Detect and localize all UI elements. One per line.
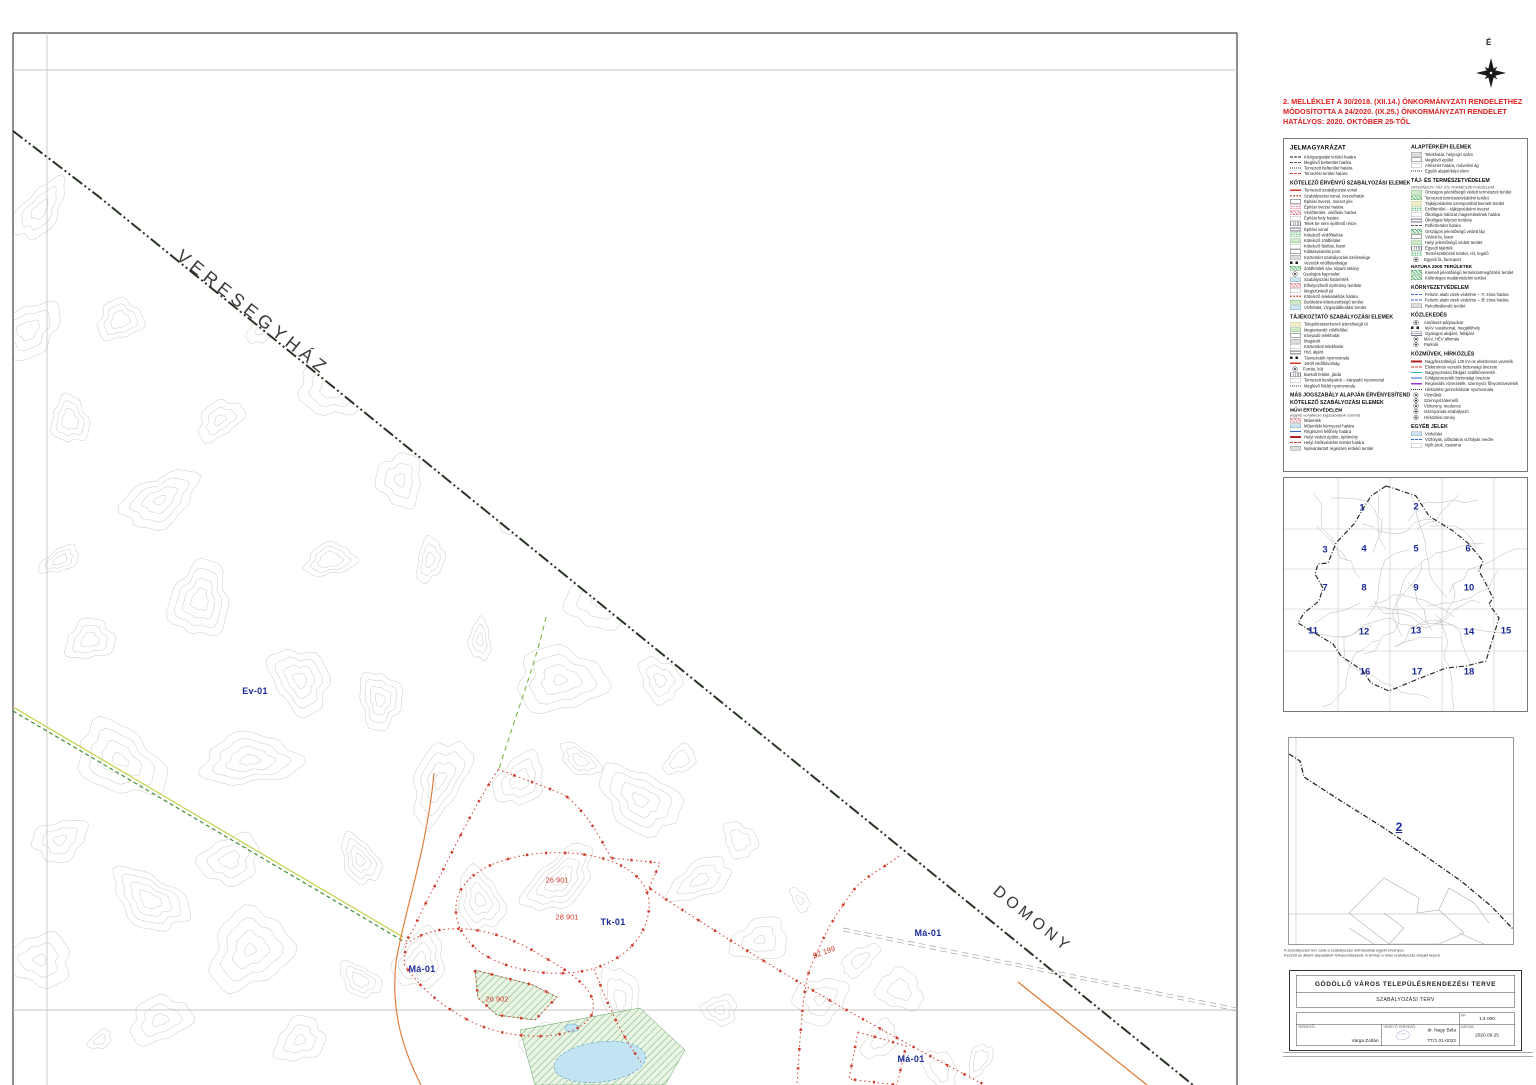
legend-item-label: Vízműkút <box>1424 392 1441 397</box>
date-value: 2020.09.25 <box>1460 1033 1515 1039</box>
legend-swatch <box>1290 418 1301 423</box>
legend-swatch <box>1411 218 1422 223</box>
footnotes: A szabályozási terv csak a szabályozási … <box>1284 948 1536 967</box>
legend-item-label: Felszín alatti vizek védelme – 'A' zóna … <box>1425 292 1509 297</box>
legend-swatch <box>1414 415 1419 420</box>
legend-item-label: Tervezési terület határa <box>1304 171 1348 176</box>
legend-swatch <box>1290 262 1301 265</box>
legend-section-nature: TÁJ- ÉS TERMÉSZETVÉDELEM ORSZÁGOS TÁJ- É… <box>1411 177 1526 262</box>
legend-swatch <box>1290 372 1301 377</box>
legend-item-label: Elhelyezhető építmény területe <box>1304 283 1362 288</box>
sheet-number: 15 <box>1501 626 1512 637</box>
legend-swatch <box>1290 210 1301 215</box>
legend-swatch <box>1290 238 1301 243</box>
legend-item-label: Műemlék <box>1304 418 1321 423</box>
legend-swatch <box>1290 431 1301 432</box>
legend-swatch <box>1290 162 1301 163</box>
legend-item-label: Telekhatár, helyrajzi szám <box>1425 152 1473 157</box>
plan-title: GÖDÖLLŐ VÁROS TELEPÜLÉSRENDEZÉSI TERVE <box>1296 975 1515 993</box>
legend-item: Nagyfeszültségű 120 kV-os elektromos vez… <box>1411 359 1526 365</box>
legend-item: Parkoló <box>1411 342 1526 348</box>
plan-subtitle: SZABÁLYOZÁSI TERV <box>1296 993 1515 1008</box>
designer-cell: TERVEZŐ: Varga Zoltán <box>1297 1025 1383 1046</box>
zone-label-ev01: Ev-01 <box>242 686 268 696</box>
legend-swatch <box>1290 446 1301 451</box>
legend-item-label: Építési hely határa <box>1304 216 1339 221</box>
legend-item-label: Különleges madárvédelmi terület <box>1425 275 1486 280</box>
parcel-label: 26 901 <box>546 876 569 885</box>
legend-item-label: Távvezeték nyomvonala <box>1304 355 1349 360</box>
legend-swatch <box>1290 357 1301 360</box>
legend-swatch <box>1290 266 1301 271</box>
legend-swatch <box>1411 443 1422 448</box>
legend-swatch <box>1290 195 1301 197</box>
legend-item-label: Parkoló <box>1424 342 1438 347</box>
legend-swatch <box>1293 366 1298 371</box>
legend-item-label: Burkolt felület, járda <box>1304 372 1341 377</box>
scale-value: 1:4 000 <box>1460 1016 1515 1022</box>
legend-item-label: Egyedi tájérték <box>1425 246 1453 251</box>
legend-swatch <box>1414 342 1419 347</box>
legend-section-title: TÁJ- ÉS TERMÉSZETVÉDELEM <box>1411 177 1526 183</box>
legend-swatch <box>1290 233 1301 238</box>
legend-item-label: Nagyfeszültségű 120 kV-os elektromos vez… <box>1425 359 1513 364</box>
parcel-label: 28 901 <box>556 913 579 922</box>
lead-designer-reg: TT/1 01-0022 <box>1427 1038 1456 1044</box>
legend-swatch <box>1411 304 1422 309</box>
legend-swatch <box>1411 276 1422 281</box>
legend-item-label: Meglévő belterület határa <box>1304 160 1351 165</box>
legend-item-label: Alrészlet határa, művelési ág <box>1425 163 1479 168</box>
designer-label: TERVEZŐ: <box>1298 1026 1315 1030</box>
legend-item-label: Közterület szabályozási szélessége <box>1304 255 1370 260</box>
lead-designer-name: dr. Nagy Béla <box>1427 1028 1456 1034</box>
legend-section-title: EGYÉB JELEK <box>1411 424 1526 430</box>
sheet-number: 8 <box>1361 583 1366 594</box>
legend-swatch <box>1290 221 1301 226</box>
legend-swatch <box>1290 322 1301 327</box>
legend-swatch <box>1290 289 1301 294</box>
legend-section-title: KÖTELEZŐ ÉRVÉNYŰ SZABÁLYOZÁSI ELEMEK <box>1290 180 1408 186</box>
legend-swatch <box>1411 270 1422 275</box>
legend-swatch <box>1411 383 1422 384</box>
legend-item-label: Műemléki környezet határa <box>1304 423 1354 428</box>
legend-item-label: Megszüntető jel <box>1304 288 1333 293</box>
legend-swatch <box>1414 404 1419 409</box>
legend-swatch <box>1411 360 1422 362</box>
amendment-line: MÓDOSÍTOTTA A 24/2020. (IX.25.) ÖNKORMÁN… <box>1283 107 1536 117</box>
boundary-line <box>1289 754 1513 929</box>
parcel-label: 26 902 <box>486 995 509 1004</box>
legend-item-label: Védőterület, védősáv határa <box>1304 210 1356 215</box>
legend-item-label: Védett fa, fasor <box>1425 234 1453 239</box>
legend-item-label: Településszerkezeti jelentőségű út <box>1304 322 1368 327</box>
legend-swatch <box>1290 328 1301 333</box>
legend-item-label: Ökológiai hálózat magterületének határa <box>1425 212 1500 217</box>
legend-swatch <box>1290 296 1301 298</box>
locator-sheet-number: 2 <box>1396 820 1403 834</box>
legend-swatch <box>1290 249 1301 254</box>
legend-item-label: Vezeték védőtávolsága <box>1304 260 1347 265</box>
legend-swatch <box>1411 196 1422 201</box>
legend-swatch <box>1411 207 1422 212</box>
legend-swatch <box>1411 389 1422 390</box>
legend-item-label: Hírközlési torony <box>1424 415 1455 420</box>
legend-swatch <box>1290 173 1301 174</box>
legend-item-label: Országos jelentőségű védett természeti t… <box>1425 190 1511 195</box>
legend-item-label: Kötelező zöldfelület <box>1304 238 1340 243</box>
date-cell: DÁTUM: 2020.09.25 <box>1460 1025 1515 1046</box>
legend-item-label: Pufferterület határa <box>1425 223 1461 228</box>
legend-item-label: Meglévő földút nyomvonala <box>1304 383 1355 388</box>
legend-swatch <box>1411 158 1422 163</box>
legend-swatch <box>1414 257 1419 262</box>
legend-swatch <box>1290 424 1301 429</box>
zone-label-ma01-right: Má-01 <box>914 928 941 938</box>
legend-swatch <box>1414 320 1419 325</box>
footer-divider <box>1283 1052 1533 1057</box>
legend-item-label: Erdőterület – tájképvédelmi övezet <box>1425 206 1489 211</box>
legend-swatch <box>1290 363 1301 365</box>
legend-item-label: Helyi védett épület, építmény <box>1304 435 1358 440</box>
legend-item-label: Építési övezet határa <box>1304 204 1343 209</box>
sheet-number: 12 <box>1359 627 1370 638</box>
legend-swatch <box>1411 300 1422 301</box>
legend-swatch <box>1290 339 1301 344</box>
legend-swatch <box>1290 244 1301 249</box>
legend-item-label: Gyalogos kapcsolat <box>1303 272 1340 277</box>
legend-swatch <box>1411 235 1422 240</box>
legend-section-title: ALAPTÉRKÉPI ELEMEK <box>1411 144 1526 150</box>
legend-item-label: Kilátásvédelmi pont <box>1304 249 1340 254</box>
sheet-number: 3 <box>1322 545 1327 556</box>
sheet-number: 1 <box>1359 503 1364 514</box>
sheet-number: 16 <box>1360 667 1371 678</box>
legend-item: Nyílt árok, csatorna <box>1411 442 1526 448</box>
sheet-number: 7 <box>1322 583 1327 594</box>
legend-swatch <box>1411 212 1422 217</box>
legend-swatch <box>1290 255 1301 260</box>
legend-item-label: Helyi jelentőségű védett terület <box>1425 240 1482 245</box>
stamp-icon <box>1395 1029 1410 1041</box>
legend-swatch <box>1411 190 1422 195</box>
zone-label-ma01-left: Má-01 <box>408 964 435 974</box>
legend-item-label: Tervezett belterület határa <box>1304 165 1352 170</box>
legend-section-title: KÖZMŰVEK, HÍRKÖZLÉS <box>1411 351 1526 357</box>
legend-swatch <box>1290 350 1301 355</box>
legend-item-label: Közterületi telekhatár <box>1304 344 1343 349</box>
legend-item-label: Telek be nem építhető része <box>1304 221 1357 226</box>
legend-item-label: Egyéb alaptérképi elem <box>1425 169 1469 174</box>
legend-item-label: Tájképvédelmi szempontból kiemelt terüle… <box>1425 201 1504 206</box>
legend-item-label: Megtartandó zöldfelület <box>1304 327 1348 332</box>
legend-item-label: Közigazgatási terület határa <box>1304 154 1356 159</box>
legend-item-label: Vízfelület <box>1425 431 1442 436</box>
legend-swatch <box>1414 398 1419 403</box>
amendment-line: HATÁLYOS: 2020. OKTÓBER 25-TŐL <box>1283 117 1536 127</box>
legend-item-label: Szabályozási vonal, övezethatár <box>1304 193 1364 198</box>
legend-swatch <box>1411 240 1422 245</box>
legend-swatch <box>1411 225 1422 226</box>
legend-item-label: Vízfolyás, időszakos vízfolyás medre <box>1425 437 1493 442</box>
regulation-red-lines <box>404 769 985 1085</box>
legend-item: Hírközlési torony <box>1411 414 1526 420</box>
amendment-line: 2. MELLÉKLET A 30/2018. (XII.14.) ÖNKORM… <box>1283 97 1536 107</box>
legend-item-label: Szabályozási határérték <box>1304 277 1349 282</box>
legend-section-other-signs: EGYÉB JELEK Vízfelület Vízfolyás, idősza… <box>1411 424 1526 448</box>
legend-item-label: Meglévő épület <box>1425 157 1453 162</box>
legend-swatch <box>1411 171 1422 172</box>
legend-item-label: Nyilvántartott régészeti érdekű terület <box>1304 446 1373 451</box>
compass-rose-icon <box>1475 56 1507 90</box>
legend-item-label: Regionális vízvezeték, szennyvíz főnyomó… <box>1425 381 1518 386</box>
legend-section-boundaries: Közigazgatási terület határa Meglévő bel… <box>1290 154 1408 176</box>
legend-swatch <box>1290 344 1301 349</box>
legend-item-label: Vízfelület, vízgazdálkodási terület <box>1304 305 1366 310</box>
legend-item-label: Rekultiválandó terület <box>1425 303 1465 308</box>
legend-item-label: Nyílt árok, csatorna <box>1425 443 1461 448</box>
legend-swatch <box>1411 432 1422 437</box>
sheet-index-canvas <box>1284 478 1527 711</box>
legend-item-label: Elektromos vezeték biztonsági övezete <box>1425 364 1497 369</box>
legend-item: Rekultiválandó terület <box>1411 303 1526 309</box>
zone-label-ma01-bottom: Má-01 <box>897 1054 924 1064</box>
lead-designer-label: VEZETŐ TERVEZŐ: <box>1384 1026 1416 1030</box>
legend-item-label: Tervezett természetvédelmi terület <box>1425 195 1489 200</box>
legend-item-label: Autóbusz-pályaudvar <box>1424 320 1463 325</box>
legend-swatch <box>1411 378 1422 379</box>
legend-swatch <box>1411 331 1422 336</box>
legend-swatch <box>1414 392 1419 397</box>
legend-swatch <box>1411 366 1422 367</box>
legend-item-label: Gáznyomás-szabályozó <box>1424 409 1469 414</box>
sheet-number: 4 <box>1361 544 1366 555</box>
legend-item: Meglévő földút nyomvonala <box>1290 383 1408 389</box>
legend-section-other-law: MÁS JOGSZABÁLY ALAPJÁN ÉRVÉNYESÍTENDŐ KÖ… <box>1290 392 1408 451</box>
sheet-number: 10 <box>1464 583 1475 594</box>
legend-left-column: JELMAGYARÁZAT Közigazgatási terület hatá… <box>1290 142 1410 468</box>
legend-item-label: Hírközlési gerinchálózat nyomvonala <box>1425 387 1493 392</box>
legend-item: Nyilvántartott régészeti érdekű terület <box>1290 446 1408 452</box>
legend-item-label: Kötelező telekalakítás határa <box>1304 294 1358 299</box>
legend-item-label: Gyalogos aluljáró, felüljáró <box>1425 331 1474 336</box>
legend-item-label: Kiemelt jelentőségű természetmegőrzési t… <box>1425 270 1513 275</box>
legend-item-label: Nagynyomású földgáz szállítóvezeték <box>1425 370 1495 375</box>
legend-section-utilities: KÖZMŰVEK, HÍRKÖZLÉS Nagyfeszültségű 120 … <box>1411 351 1526 420</box>
legend-item: Egyedi fa, facsoport <box>1411 257 1526 263</box>
legend-item-label: Tervezett kerékpárút – irányadó nyomvona… <box>1304 378 1384 383</box>
legend-right-column: ALAPTÉRKÉPI ELEMEK Telekhatár, helyrajzi… <box>1411 142 1526 468</box>
sheet-number: 9 <box>1413 583 1418 594</box>
designer-name: Varga Zoltán <box>1352 1038 1379 1044</box>
lead-designer-cell: VEZETŐ TERVEZŐ: dr. Nagy Béla TT/1 01-00… <box>1382 1025 1460 1046</box>
legend-item-label: MÁV, HÉV állomás <box>1424 337 1459 342</box>
legend-swatch <box>1290 205 1301 210</box>
sheet-number: 6 <box>1465 544 1470 555</box>
legend-swatch <box>1411 201 1422 206</box>
legend-item-label: Egyedi fa, facsoport <box>1424 257 1461 262</box>
legend-swatch <box>1411 251 1422 256</box>
legend-swatch <box>1290 167 1301 168</box>
sheet-number: 17 <box>1412 667 1423 678</box>
scale-cell: M= 1:4 000 <box>1460 1013 1515 1024</box>
legend-section-title: TÁJÉKOZTATÓ SZABÁLYOZÁSI ELEMEK <box>1290 314 1408 320</box>
legend-swatch <box>1411 327 1422 330</box>
legend-item-label: Építési vonal <box>1304 227 1328 232</box>
legend-swatch <box>1290 333 1301 338</box>
legend-item: Különleges madárvédelmi terület <box>1411 275 1526 281</box>
legend-swatch <box>1414 337 1419 342</box>
locator-canvas <box>1289 738 1513 944</box>
legend-item-label: Kötelező fásítás, fasor <box>1304 244 1345 249</box>
legend-swatch <box>1411 372 1422 373</box>
legend-item-label: Felszín alatti vizek védelme – 'B' zóna … <box>1425 298 1509 303</box>
legend-section-mandatory: KÖTELEZŐ ÉRVÉNYŰ SZABÁLYOZÁSI ELEMEK Ter… <box>1290 180 1408 311</box>
legend-swatch <box>1411 163 1422 168</box>
locator-map: 2 <box>1288 737 1514 945</box>
legend-item-label: Szennyvízátemelő <box>1424 398 1458 403</box>
legend-item-label: Természetközeli terület, rét, legelő <box>1425 251 1489 256</box>
empty-cell <box>1297 1013 1460 1024</box>
date-label: DÁTUM: <box>1461 1026 1474 1030</box>
legend-swatch <box>1411 294 1422 295</box>
legend-swatch <box>1411 229 1422 234</box>
legend-section-title: MÁS JOGSZABÁLY ALAPJÁN ÉRVÉNYESÍTENDŐ <box>1290 392 1408 398</box>
legend-item-label: Jelölt védőtávolság <box>1304 361 1340 366</box>
contour-lines <box>0 174 993 1085</box>
zone-label-tk01: Tk-01 <box>600 917 625 927</box>
legend-item-label: Építési övezet, övezet jele <box>1304 199 1353 204</box>
legend-swatch <box>1290 283 1301 288</box>
sheet-number: 5 <box>1413 544 1418 555</box>
legend-swatch <box>1293 272 1298 277</box>
legend-swatch <box>1290 385 1301 386</box>
legend-item-label: Földgázvezeték biztonsági övezete <box>1425 376 1490 381</box>
sheet-number: 18 <box>1464 667 1475 678</box>
legend-title: JELMAGYARÁZAT <box>1290 144 1408 151</box>
legend-section-informative: TÁJÉKOZTATÓ SZABÁLYOZÁSI ELEMEK Települé… <box>1290 314 1408 389</box>
sheet-number: 13 <box>1411 626 1422 637</box>
sheet-number: 2 <box>1413 502 1418 513</box>
legend-item: Kiemelt jelentőségű természetmegőrzési t… <box>1411 270 1526 276</box>
legend-section-environment: KÖRNYEZETVÉDELEM Felszín alatti vizek vé… <box>1411 284 1526 308</box>
legend-swatch <box>1290 378 1301 383</box>
north-label: É <box>1486 38 1491 47</box>
legend-swatch <box>1411 152 1422 157</box>
sheet-number: 11 <box>1308 626 1318 637</box>
legend-swatch <box>1290 216 1301 221</box>
legend-section-basemap: ALAPTÉRKÉPI ELEMEK Telekhatár, helyrajzi… <box>1411 144 1526 174</box>
legend-item-label: Magánút <box>1304 339 1320 344</box>
legend-swatch <box>1411 246 1422 251</box>
legend-item-label: Kötelező védőfásítás <box>1304 232 1343 237</box>
legend-section-natura2000: NATURA 2000 TERÜLETEK Kiemelt jelentőség… <box>1411 264 1526 281</box>
legend-swatch <box>1290 305 1301 310</box>
legend-item-label: Beültetési kötelezettségű terület <box>1304 300 1363 305</box>
sheet-index-map: 1 2 3 4 5 6 7 8 9 10 11 12 <box>1283 477 1528 712</box>
legend-swatch <box>1411 439 1422 440</box>
legend-item: Egyéb alaptérképi elem <box>1411 168 1526 174</box>
legend-swatch <box>1290 227 1301 232</box>
legend-item-label: MÁV vasútvonal, megállóhely <box>1425 325 1480 330</box>
legend-swatch <box>1290 189 1301 191</box>
legend-item-label: Ökológiai folyosó területe <box>1425 218 1472 223</box>
legend-item-label: Forrás, kút <box>1303 366 1323 371</box>
legend-swatch <box>1414 409 1419 414</box>
legend-item-label: Országos jelentőségű védett láp <box>1425 229 1485 234</box>
amendment-note: 2. MELLÉKLET A 30/2018. (XII.14.) ÖNKORM… <box>1283 97 1536 127</box>
footnote-line: Készült az állami alapadatok felhasználá… <box>1284 953 1536 958</box>
title-block: GÖDÖLLŐ VÁROS TELEPÜLÉSRENDEZÉSI TERVE S… <box>1289 970 1529 1085</box>
legend-item-label: Régészeti lelőhely határa <box>1304 429 1351 434</box>
legend-item: Országos jelentőségű védett természeti t… <box>1411 189 1526 195</box>
legend-swatch <box>1290 300 1301 305</box>
legend-item-label: Irányadó telekhatár <box>1304 333 1340 338</box>
legend-item-label: Híd, átjáró <box>1304 350 1323 355</box>
legend-item: Tervezési terület határa <box>1290 171 1408 177</box>
legend-section-title: KÖZLEKEDÉS <box>1411 312 1526 318</box>
legend-item: Regionális vízvezeték, szennyvíz főnyomó… <box>1411 381 1526 387</box>
legend-swatch <box>1290 199 1301 204</box>
legend-swatch <box>1290 436 1301 438</box>
legend-item-label: Zöldfelületi sáv, tóparti sétány <box>1304 266 1359 271</box>
legend-section-title: KÖRNYEZETVÉDELEM <box>1411 284 1526 290</box>
legend-item: Vízfelület, vízgazdálkodási terület <box>1290 305 1408 311</box>
legend-item-label: Helyi értékvédelmi terület határa <box>1304 440 1364 445</box>
legend-section-title2: KÖTELEZŐ SZABÁLYOZÁSI ELEMEK <box>1290 400 1408 406</box>
legend-section-transport: KÖZLEKEDÉS Autóbusz-pályaudvar MÁV vasút… <box>1411 312 1526 347</box>
legend-swatch <box>1290 442 1301 443</box>
legend-swatch <box>1290 156 1301 157</box>
plan-sheet: VERESEGYHÁZ DOMONY Ev-01 Má-01 Tk-01 Má-… <box>0 0 1536 1085</box>
legend-item-label: Tervezett szabályozási vonal <box>1304 188 1357 193</box>
legend-swatch <box>1290 277 1301 282</box>
sheet-number: 14 <box>1464 627 1475 638</box>
legend-item-label: Víztorony, medence <box>1424 404 1461 409</box>
